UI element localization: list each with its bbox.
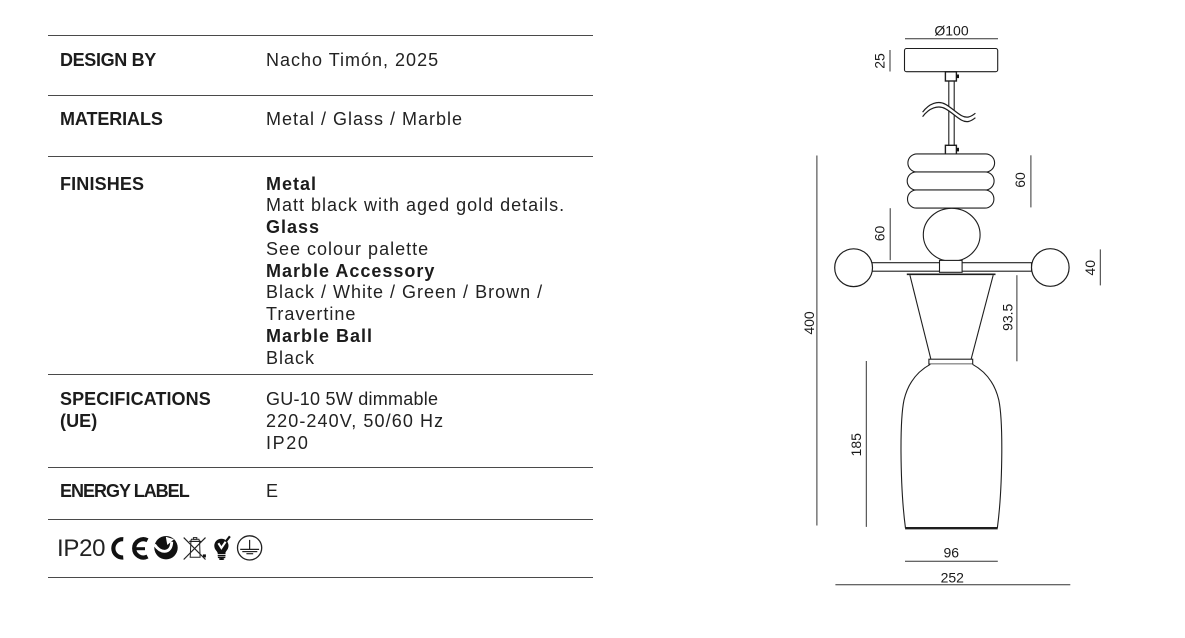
svg-text:Ø100: Ø100 <box>934 23 968 39</box>
svg-text:25: 25 <box>872 53 888 69</box>
svg-text:40: 40 <box>1082 260 1098 276</box>
svg-text:185: 185 <box>848 433 864 457</box>
svg-text:400: 400 <box>801 311 817 335</box>
svg-text:60: 60 <box>871 226 887 242</box>
svg-text:96: 96 <box>944 545 960 561</box>
svg-text:252: 252 <box>941 570 965 586</box>
svg-text:93.5: 93.5 <box>1000 303 1016 330</box>
svg-text:60: 60 <box>1012 172 1028 188</box>
